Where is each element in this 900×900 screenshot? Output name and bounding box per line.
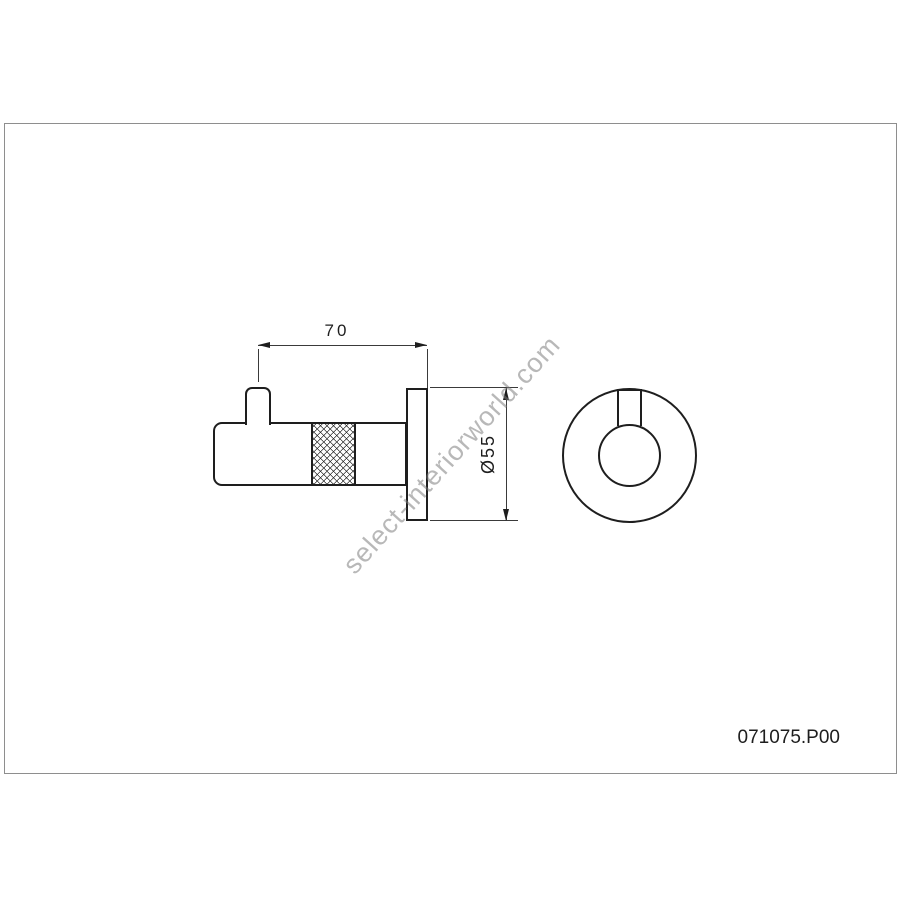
dim70-extension-line-left — [258, 349, 259, 382]
side-view-hook-pin — [245, 387, 271, 425]
dim70-arrowhead-left — [258, 342, 270, 348]
side-view-hook-body — [213, 422, 407, 486]
dia55-arrowhead-bottom — [503, 509, 509, 521]
dim70-arrowhead-right — [415, 342, 427, 348]
front-view-body-circle — [598, 424, 661, 487]
dim70-extension-line-right — [427, 349, 428, 388]
dim70-dimension-line — [258, 345, 427, 346]
dim70-label: 70 — [307, 321, 367, 341]
part-number: 071075.P00 — [700, 727, 840, 749]
side-view-knurled-section — [311, 424, 356, 484]
front-view-hook-pin — [617, 389, 642, 426]
technical-drawing-sheet: 70 Ø55 071075.P00 select-interiorworld.c… — [0, 0, 900, 900]
